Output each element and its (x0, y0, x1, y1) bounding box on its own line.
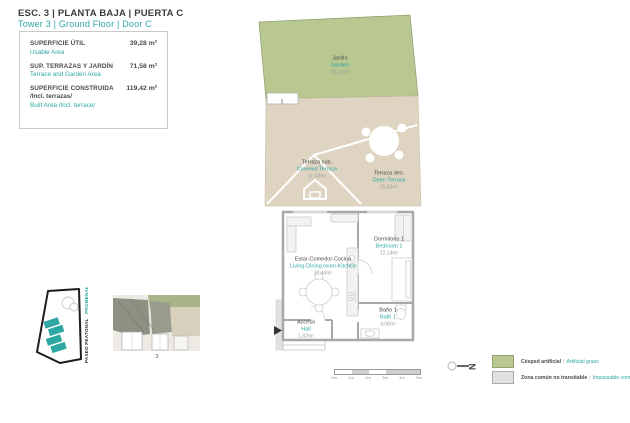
terrace-garden-value: 71,58 m² (130, 63, 157, 70)
legend-communal-area: Zona común no transitable | Impassable c… (492, 371, 630, 384)
grass-swatch (492, 355, 514, 368)
built-area-sublabel: Built Area /Incl. terrace/ (30, 102, 157, 109)
covered-terrace-label: Terraza cub. Covered Terrace 11,43m² (297, 160, 338, 181)
living-room-label: Estar-Comedor-Cocina Living-Dining room-… (290, 257, 356, 278)
legend-artificial-grass: Césped artificial | Artificial grass (492, 355, 599, 368)
built-area-label2: /Incl. terrazas/ (30, 93, 157, 100)
terrace-garden-area-row: SUP. TERRAZAS Y JARDÍN 71,58 m² Terrace … (30, 63, 157, 79)
usable-area-value: 39,28 m² (130, 40, 157, 47)
scale-tick: 3m (382, 375, 388, 380)
page-subtitle: Tower 3 | Ground Floor | Door C (18, 19, 152, 29)
communal-swatch (492, 371, 514, 384)
usable-area-label: SUPERFICIE ÚTIL (30, 40, 85, 47)
open-terrace-label: Terraza des. Open Terrace 25,02m² (372, 171, 405, 192)
scale-tick: 4m (399, 375, 405, 380)
scale-tick: 1m (348, 375, 354, 380)
north-arrow-icon: N (446, 357, 480, 375)
scale-tick: 5m (416, 375, 422, 380)
surface-info-box: SUPERFICIE ÚTIL 39,28 m² Usable Area SUP… (19, 31, 168, 129)
street-label-en: PROMENADE (84, 287, 89, 314)
terrace-garden-label: SUP. TERRAZAS Y JARDÍN (30, 63, 113, 70)
scale-tick: 0m (331, 375, 337, 380)
scale-bar-ticks: 0m 1m 2m 3m 4m 5m (334, 375, 419, 381)
bedroom1-label: Dormitorio 1 Bedroom 1 12,14m² (374, 237, 404, 258)
terrace-garden-sublabel: Terrace and Garden Area (30, 71, 157, 78)
page-title: ESC. 3 | PLANTA BAJA | PUERTA C (18, 8, 183, 19)
built-area-row: SUPERFICIE CONSTRUIDA 119,42 m² /Incl. t… (30, 85, 157, 109)
plan-sheet: ESC. 3 | PLANTA BAJA | PUERTA C Tower 3 … (0, 0, 630, 423)
garden-label: Jardín Garden 35,13m² (331, 56, 349, 77)
built-area-value: 119,42 m² (126, 85, 157, 92)
usable-area-row: SUPERFICIE ÚTIL 39,28 m² Usable Area (30, 40, 157, 56)
street-label-es: PASEO PEATONAL (84, 318, 89, 363)
bedroom-furniture (392, 215, 412, 301)
tower-number-label: 3 (150, 354, 164, 360)
site-plan-thumbnail: PASEO PEATONAL PROMENADE (33, 287, 97, 369)
north-label: N (467, 364, 477, 371)
hall-label: Acceso Hall 1,62m² (297, 320, 315, 341)
bath1-label: Baño 1 Bath 1 4,08m² (379, 308, 396, 329)
usable-area-sublabel: Usable Area (30, 49, 157, 56)
street-label: PASEO PEATONAL PROMENADE (84, 287, 89, 363)
overview-unit-highlight (170, 307, 200, 336)
built-area-label: SUPERFICIE CONSTRUIDA (30, 85, 114, 92)
scale-tick: 2m (365, 375, 371, 380)
